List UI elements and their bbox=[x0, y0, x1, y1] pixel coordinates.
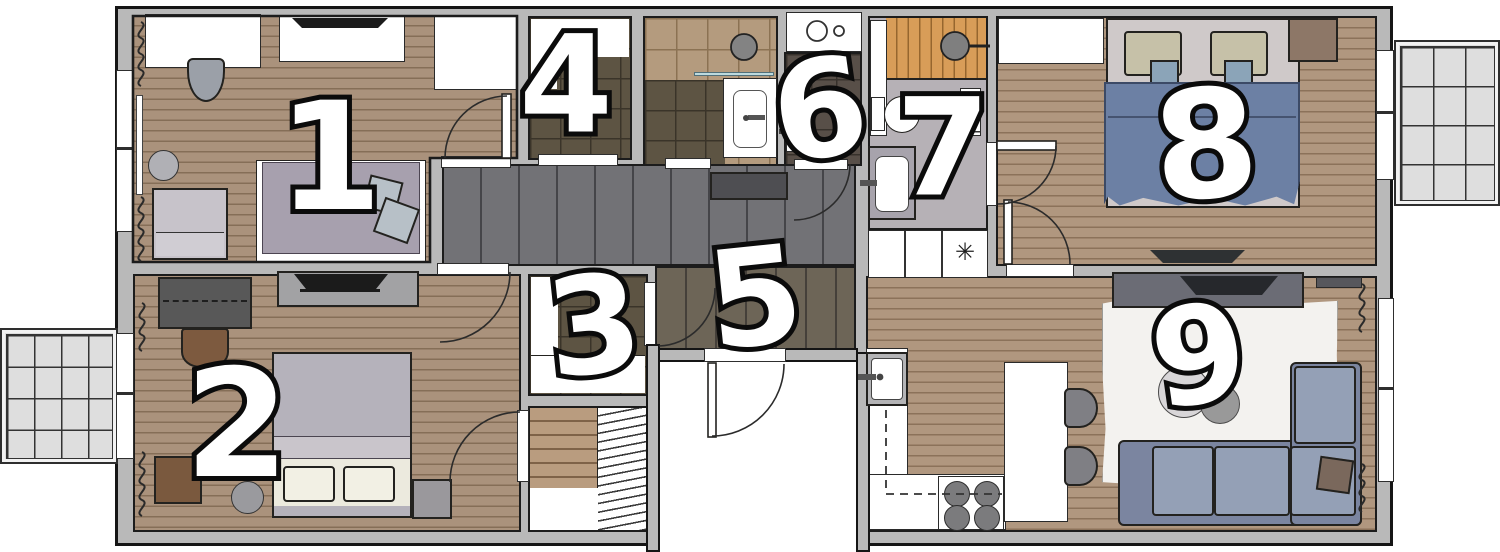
room-8-number: 8 bbox=[1148, 56, 1264, 237]
bathroom-shower-darkzone bbox=[645, 80, 725, 164]
room-4-label: 4 bbox=[486, 5, 646, 165]
room-7-number: 7 bbox=[896, 70, 990, 227]
room-2-label: 2 bbox=[157, 345, 317, 505]
freezer-icon: ✳ bbox=[950, 241, 980, 265]
stove-burner-1 bbox=[944, 481, 970, 507]
window-living bbox=[1378, 298, 1394, 482]
room-1-number: 1 bbox=[278, 71, 382, 245]
room-8-nightstand bbox=[1288, 18, 1338, 62]
door-threshold-living bbox=[1006, 264, 1074, 277]
room-2-desk bbox=[158, 277, 252, 329]
sofa-pillow bbox=[1316, 456, 1354, 494]
room-2-nightstand bbox=[412, 479, 452, 519]
lower-closet-shelves bbox=[530, 408, 598, 488]
room-2-number: 2 bbox=[185, 338, 289, 512]
sofa-seat-1 bbox=[1152, 446, 1214, 516]
stove-burner-3 bbox=[944, 505, 970, 531]
room-2-tv-board bbox=[277, 271, 419, 307]
door-threshold-closet bbox=[517, 410, 529, 482]
cabinet-divider-1 bbox=[904, 231, 906, 277]
room-1-radiator-panel bbox=[136, 95, 143, 195]
sofa-chaise-cushion bbox=[1294, 366, 1356, 444]
room-4-number: 4 bbox=[519, 7, 613, 164]
stove-burner-4 bbox=[974, 505, 1000, 531]
soundbar bbox=[1316, 277, 1362, 288]
room-2-desk-line bbox=[163, 300, 247, 302]
kitchen-faucet bbox=[858, 374, 876, 380]
balcony-right bbox=[1394, 40, 1500, 206]
entrance-vestibule bbox=[658, 360, 856, 552]
room-8-label: 8 bbox=[1121, 61, 1292, 232]
room-5-label: 5 bbox=[667, 210, 843, 386]
room-1-label: 1 bbox=[250, 78, 410, 238]
room-1-stool bbox=[148, 150, 179, 181]
balcony-left-grid bbox=[6, 334, 113, 459]
room-1-armchair-seat bbox=[156, 232, 224, 256]
room-6-number: 6 bbox=[763, 26, 878, 195]
room-1-tv-board bbox=[279, 16, 405, 62]
stove-burner-2 bbox=[974, 481, 1000, 507]
room-8-wardrobe bbox=[998, 18, 1104, 64]
room-5-number: 5 bbox=[700, 215, 810, 381]
balcony-door-room8 bbox=[1376, 50, 1394, 180]
door-threshold-room2 bbox=[437, 263, 509, 275]
window-mullion bbox=[1377, 111, 1393, 114]
window-mullion bbox=[117, 392, 133, 395]
balcony-door-room2 bbox=[116, 333, 134, 459]
window-mullion bbox=[1379, 387, 1393, 390]
room-2-pillow-right bbox=[343, 466, 395, 502]
room-7-label: 7 bbox=[863, 68, 1023, 228]
floorplan-canvas: ✳ bbox=[0, 0, 1500, 552]
window-mullion bbox=[117, 147, 133, 150]
room-3-label: 3 bbox=[506, 238, 682, 414]
balcony-left bbox=[0, 328, 118, 464]
window-room1 bbox=[116, 70, 134, 232]
cabinet-divider-2 bbox=[941, 231, 943, 277]
sofa-seat-2 bbox=[1214, 446, 1290, 516]
room-9-number: 9 bbox=[1142, 272, 1257, 441]
kitchen-island bbox=[1004, 362, 1068, 522]
door-threshold-bath bbox=[665, 158, 711, 169]
lower-closet-hanging bbox=[598, 408, 646, 530]
room-9-label: 9 bbox=[1109, 266, 1290, 447]
balcony-right-grid bbox=[1400, 46, 1495, 201]
room-3-number: 3 bbox=[539, 243, 649, 409]
